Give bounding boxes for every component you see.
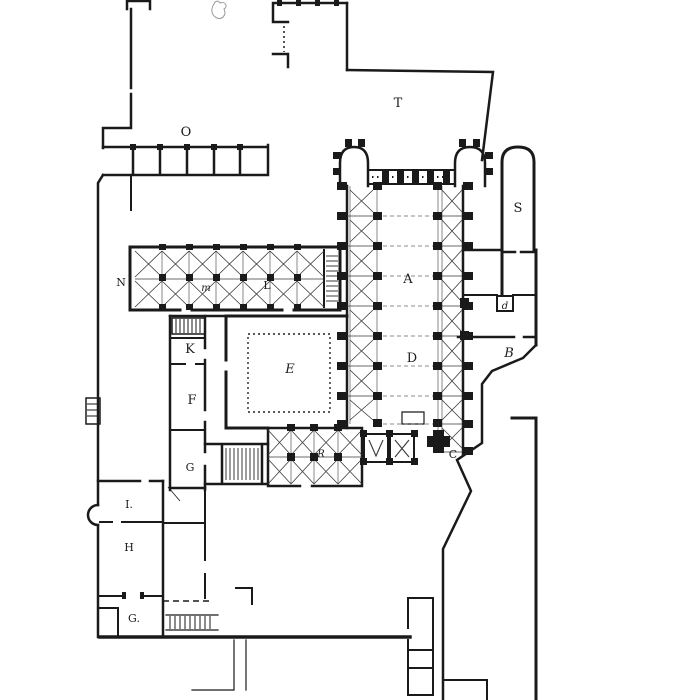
west-range-walls <box>170 316 226 490</box>
label-outer-courtyard-o: O <box>181 125 192 140</box>
label-room-g: G <box>186 461 195 474</box>
label-refectory-r: R <box>316 449 325 460</box>
label-cloister-e: E <box>284 362 295 377</box>
faint-sketch <box>212 1 226 18</box>
label-yard-b: B <box>503 346 514 361</box>
kitchen-stair-hatch <box>170 616 210 629</box>
north-court-walls <box>273 3 493 160</box>
label-room-f: F <box>187 393 196 408</box>
piers-and-buttresses <box>122 0 493 599</box>
label-hall-west-n: N <box>116 276 126 289</box>
floor-plan-page: O T S N m L A K E D B d F G R C I. H G. <box>0 0 700 700</box>
abbey-floor-plan: O T S N m L A K E D B d F G R C I. H G. <box>0 0 700 700</box>
label-room-g-south: G. <box>128 612 140 625</box>
label-room-i: I. <box>125 498 133 511</box>
crossing-pier <box>427 430 450 453</box>
south-court-walls <box>100 637 410 690</box>
label-chamber-d: d <box>502 301 508 312</box>
label-room-k: K <box>185 342 195 357</box>
label-hall-middle-m: m <box>201 283 210 294</box>
label-room-h: H <box>124 541 134 554</box>
nave-bay-lines <box>383 216 433 424</box>
west-precinct-walls <box>86 1 268 637</box>
label-choir-d: D <box>407 351 417 366</box>
label-terrace-t: T <box>394 96 403 111</box>
label-hall-east-l: L <box>263 279 271 292</box>
label-nave-a: A <box>402 272 413 287</box>
day-stair-hatch <box>176 319 200 333</box>
label-chapel-s: S <box>514 201 523 216</box>
label-passage-c: C <box>449 448 457 461</box>
southwest-block-walls <box>98 481 252 637</box>
